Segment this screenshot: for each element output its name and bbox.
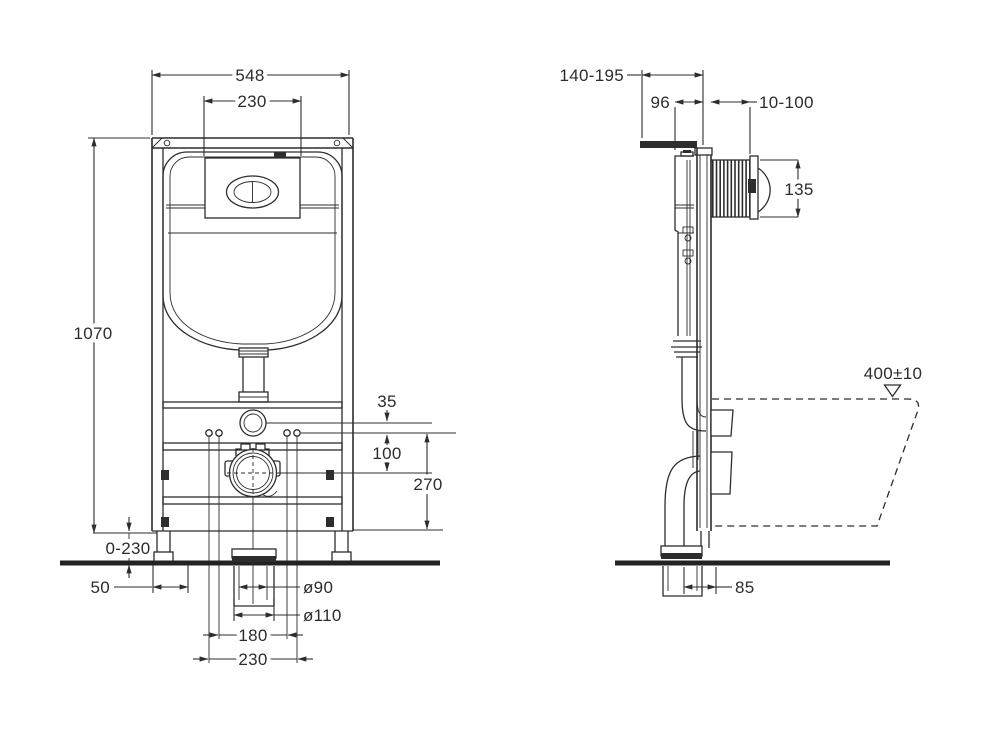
dim-label-85: 85: [735, 578, 755, 597]
dim-label-10-100: 10-100: [759, 93, 814, 112]
dim-plate-width: 230: [204, 92, 301, 156]
dim-wall-finish: 10-100: [711, 93, 814, 154]
dim-label-548: 548: [235, 66, 264, 85]
front-view: 548 230 1070 35 100: [60, 66, 456, 669]
dim-bowl-height: 400±10: [864, 364, 922, 397]
dim-label-96: 96: [650, 93, 670, 112]
dim-outlet-socket: ø110: [234, 598, 342, 625]
cistern-top-notch: [274, 152, 286, 157]
sleeve-knob: [758, 168, 770, 212]
dim-label-135: 135: [784, 180, 813, 199]
dim-outlet-to-wall: 85: [684, 567, 755, 597]
dim-label-230-plate: 230: [237, 92, 266, 111]
installation-drawing: 548 230 1070 35 100: [0, 0, 1000, 739]
access-sleeve: [711, 156, 770, 219]
dim-label-0-230: 0-230: [106, 539, 151, 558]
dim-label-100: 100: [372, 444, 401, 463]
dim-access-box-height: 135: [760, 160, 814, 217]
sleeve-latch: [748, 179, 756, 193]
drain-socket: [232, 497, 276, 606]
dim-bolt-spacing-inner: 180: [203, 626, 303, 645]
dim-label-400: 400±10: [864, 364, 922, 383]
dim-frame-height: 1070: [73, 138, 157, 533]
toilet-bowl-outline: [712, 399, 919, 526]
dim-bolts-to-outlet: 100: [372, 435, 401, 471]
frame-profile-side: [695, 148, 712, 548]
dim-label-180: 180: [238, 626, 267, 645]
flush-bend-side: [682, 357, 706, 468]
dim-label-50: 50: [90, 578, 110, 597]
dim-bolt-spacing-outer: 230: [193, 650, 313, 669]
level-mark-triangle: [885, 385, 901, 397]
dim-base-offset: 50: [90, 565, 188, 597]
dim-label-140-195: 140-195: [560, 66, 625, 85]
wall-bracket: [640, 141, 697, 148]
dim-label-270: 270: [413, 475, 442, 494]
dim-installation-depth: 140-195: [560, 66, 704, 145]
side-view: 140-195 96 10-100 135: [560, 66, 923, 597]
water-inlet-port: [240, 410, 266, 436]
flush-pipe: [239, 348, 268, 402]
flush-plate-box: [205, 158, 300, 218]
waste-elbow-side: [661, 456, 702, 596]
dim-label-d90: ø90: [303, 578, 333, 597]
waste-outlet: [225, 444, 280, 499]
technical-drawing-page: 548 230 1070 35 100: [0, 0, 1000, 739]
dim-label-230-bolts: 230: [238, 650, 267, 669]
mounting-blocks: [711, 410, 733, 494]
dim-label-d110: ø110: [303, 606, 342, 625]
dim-label-35: 35: [377, 392, 397, 411]
dim-leg-adjustment: 0-230: [106, 517, 151, 578]
dim-label-1070: 1070: [73, 324, 112, 343]
dim-inlet-offset: 35: [377, 392, 397, 421]
